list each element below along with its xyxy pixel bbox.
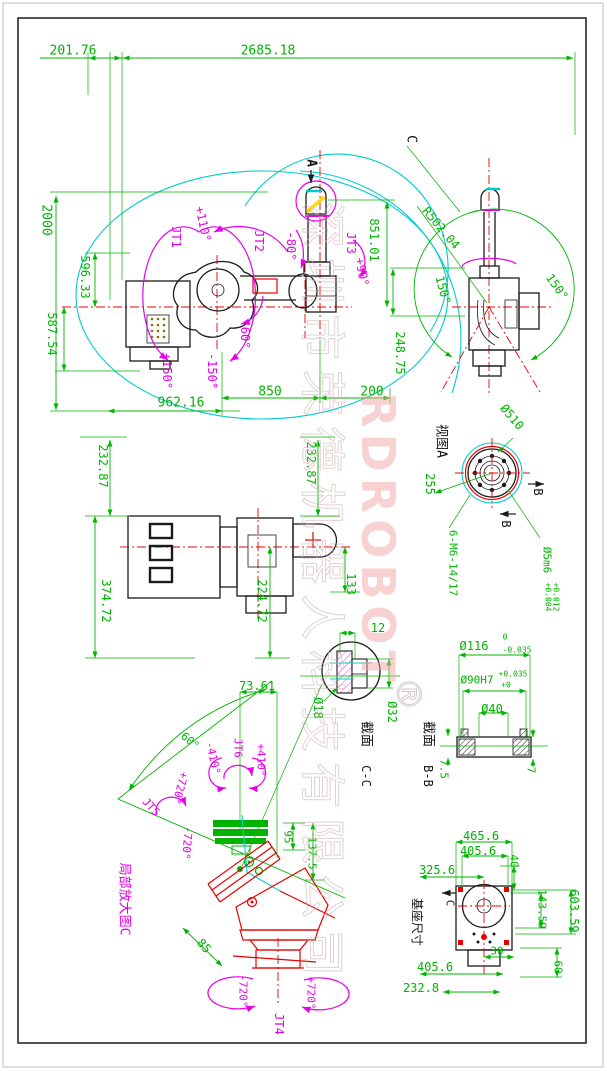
joint-jt2: JT2: [252, 230, 266, 252]
connector-pins: [151, 318, 166, 339]
arm-red-detail: [253, 279, 277, 293]
c-label-leader: [407, 146, 460, 212]
work-envelope-ellipse: [76, 171, 448, 419]
tol-5m6-lo: +0.004: [544, 583, 553, 612]
tol-116-lo: -0.035: [503, 646, 532, 655]
robot-base-outline: [126, 281, 190, 369]
joint-jt5: JT5: [140, 795, 163, 818]
dim-60: 60: [552, 960, 565, 973]
dim-248-75: 248.75: [393, 331, 407, 374]
tol-90-up: +0.035: [499, 670, 528, 679]
dim-30: 30: [490, 945, 503, 958]
angle-plus150: +150°: [160, 353, 174, 389]
dim-2000: 2000: [39, 204, 54, 235]
angle-minus60: -60°: [238, 320, 252, 349]
label-b2: B: [499, 520, 513, 527]
dim-dia116: Ø116: [460, 639, 489, 653]
angle-minus150: -150°: [205, 353, 219, 389]
dim-405-6b: 405.6: [417, 960, 453, 974]
dim-dia5m6: Ø5m6: [541, 547, 554, 574]
m6-leader: [449, 495, 470, 528]
angle-minus720-jt5: -720°: [179, 826, 195, 860]
cad-drawing-canvas: 201.762685.182000596.33587.54962.1685020…: [0, 0, 607, 1071]
dim-465-6: 465.6: [463, 829, 499, 843]
dim-40: 40: [508, 854, 521, 867]
dim-201-76: 201.76: [50, 44, 97, 59]
dim-587-54: 587.54: [45, 312, 59, 355]
dim-596-33: 596.33: [78, 255, 92, 298]
tol-90-lo: +0: [501, 681, 511, 690]
label-b1: B: [531, 488, 545, 495]
dim-r502-04: R502.04: [419, 204, 462, 252]
cad-sheet: 201.762685.182000596.33587.54962.1685020…: [0, 0, 607, 1071]
dim-962-16: 962.16: [158, 396, 205, 411]
dim-232-8: 232.8: [403, 981, 439, 995]
top-swing-view: [407, 146, 574, 396]
dim-7: 7: [525, 767, 538, 774]
joint-jt1: JT1: [169, 226, 183, 248]
label-view-a: 视图A: [434, 424, 449, 458]
dim-224-72: 224.72: [255, 579, 269, 622]
label-enlarged-c: 局部放大图C: [117, 863, 132, 936]
dim-374-72: 374.72: [99, 579, 113, 622]
angle-minus410: -410°: [203, 740, 223, 775]
watermark-en: RDROBOT: [351, 392, 405, 688]
label-section-bb-1: 截面: [421, 721, 436, 747]
dim-2685-18: 2685.18: [241, 44, 296, 59]
dim-603-59: 603.59: [567, 889, 581, 932]
label-c-top: C: [404, 135, 419, 143]
dim-850: 850: [258, 385, 281, 400]
label-view-arrow-a: A: [304, 159, 319, 167]
dim255-line: [435, 473, 492, 493]
dim-73-61: 73.61: [239, 679, 275, 693]
dim-95: 95: [282, 830, 295, 843]
dim-dia90h7: Ø90H7: [460, 674, 493, 687]
dim-325-6: 325.6: [419, 863, 455, 877]
view-a-flange: [435, 438, 544, 538]
label-c-base: C: [444, 900, 457, 907]
dim-85: 85: [194, 936, 214, 956]
joint-jt6: JT6: [232, 738, 245, 758]
dim-405-6a: 405.6: [460, 844, 496, 858]
dim-232-87-left: 232.87: [96, 444, 110, 487]
dim-851-01: 851.01: [367, 218, 381, 261]
dim-143-59: 143.59: [536, 889, 549, 929]
joint-jt4: JT4: [272, 1013, 286, 1035]
label-section-cc-2: C-C: [359, 765, 373, 787]
watermark-cn: 深圳市荣德机器人科技有限公司: [295, 202, 349, 986]
label-section-cc-1: 截面: [359, 721, 374, 747]
tol-116-up: 0: [503, 633, 508, 642]
dim-dia40: Ø40: [481, 702, 503, 716]
angle-150-right: 150°: [543, 271, 571, 303]
label-base-size: 基座尺寸: [410, 898, 425, 946]
base-outline: [456, 880, 512, 975]
angle-minus720-jt4: -720°: [237, 974, 250, 1007]
watermark-reg: ®: [388, 677, 428, 711]
dim-dia510: Ø510: [497, 401, 526, 432]
angle-plus410: +410°: [255, 743, 268, 776]
angle-plus720-jt5: +720°: [169, 770, 190, 805]
angle-plus110: +110°: [192, 205, 213, 243]
label-section-bb-2: B-B: [421, 765, 435, 787]
dim-6-m6: 6-M6-14/17: [447, 530, 460, 596]
dim-255: 255: [423, 473, 437, 495]
dim-7-5: 7.5: [438, 759, 451, 779]
